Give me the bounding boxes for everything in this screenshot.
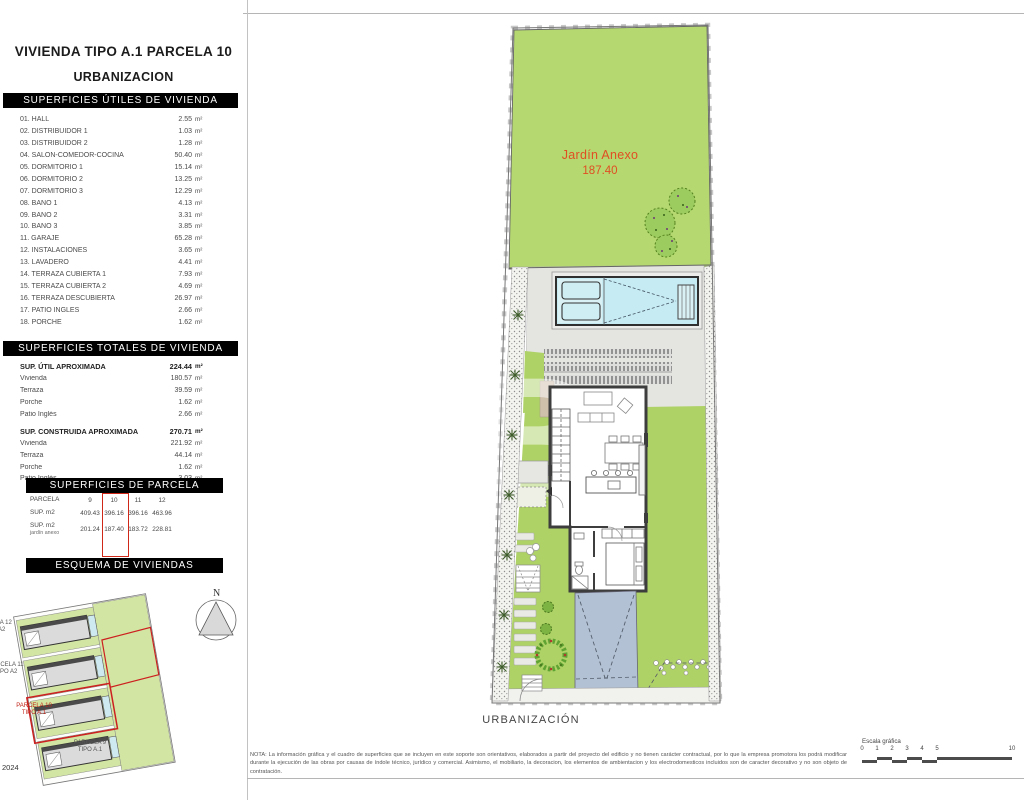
bedroom-furniture [602,529,644,585]
north-arrow-icon: N [196,588,236,640]
table-row: Terraza 44.14 m² [20,449,212,461]
total-group-rows: Vivienda 180.57 m² Terraza 39.59 m² Porc… [20,373,212,421]
row-label: 03. DISTRIBUIDOR 2 [20,140,148,147]
superficies-totales-table: SUP. ÚTIL APROXIMADA 224.44 m² Vivienda … [20,361,212,485]
table-row: 05. DORMITORIO 1 15.14 m² [20,162,212,174]
table-row: 13. LAVADERO 4.41 m² [20,257,212,269]
row-unit: m² [192,212,212,219]
row-label: 12. INSTALACIONES [20,247,148,254]
row-unit: m² [192,223,212,230]
row-unit: m² [192,164,212,171]
row-unit: m² [192,152,212,159]
esquema-svg: N [0,578,247,796]
legal-note: NOTA: La información gráfica y el cuadro… [250,751,847,776]
sheet-subtitle: URBANIZACION [0,70,247,84]
row-unit: m² [192,464,212,471]
parcela-sup-row: SUP. m2 409.43 396.16 396.16 463.96 [30,510,230,517]
table-row: Terraza 39.59 m² [20,385,212,397]
row-value: 65.28 [148,235,192,242]
row-label: 11. GARAJE [20,235,148,242]
row-label: 09. BAÑO 2 [20,212,148,219]
section-header-totales: SUPERFICIES TOTALES DE VIVIENDA [3,341,238,356]
row-value: 221.92 [148,440,192,447]
parcela-jardin-row: SUP. m2 jardín anexo 201.24 187.40 183.7… [30,523,230,536]
table-row: Vivienda 180.57 m² [20,373,212,385]
row-value: 44.14 [148,452,192,459]
row-value: 1.62 [148,399,192,406]
row-unit: m² [192,116,212,123]
dining-set [605,436,643,470]
table-row: 04. SALÓN-COMEDOR-COCINA 50.40 m² [20,150,212,162]
table-row: Patio Inglés 2.66 m² [20,409,212,421]
parcela-header-row: PARCELA 9 10 11 12 [30,497,230,504]
row-value: 180.57 [148,375,192,382]
row-value: 3.31 [148,212,192,219]
table-row: 15. TERRAZA CUBIERTA 2 4.69 m² [20,280,212,292]
sunbed [562,303,600,320]
row-label: 04. SALÓN-COMEDOR-COCINA [20,152,148,159]
table-row: 06. DORMITORIO 2 13.25 m² [20,173,212,185]
exterior-stair [516,565,540,592]
year-label: 2024 [2,763,19,772]
row-label: 02. DISTRIBUIDOR 1 [20,128,148,135]
section-header-parcela: SUPERFICIES DE PARCELA [26,478,223,493]
plan-caption: URBANIZACIÓN [456,714,606,726]
table-row: 17. PATIO INGLES 2.66 m² [20,304,212,316]
table-row: 08. BAÑO 1 4.13 m² [20,197,212,209]
row-label: 14. TERRAZA CUBIERTA 1 [20,271,148,278]
row-value: 1.03 [148,128,192,135]
scale-tick: 2 [890,746,893,752]
table-row: 03. DISTRIBUIDOR 2 1.28 m² [20,138,212,150]
row-label: Vivienda [20,440,148,447]
row-unit: m² [192,399,212,406]
row-label: Patio Inglés [20,411,148,418]
table-row: 10. BAÑO 3 3.85 m² [20,221,212,233]
row-label: 01. HALL [20,116,148,123]
scale-label: Escala gráfica [862,738,901,745]
row-value: 1.62 [148,319,192,326]
row-label: 08. BAÑO 1 [20,200,148,207]
row-label: Terraza [20,452,148,459]
esquema-drawing: N [0,578,247,796]
sheet-title: VIVIENDA TIPO A.1 PARCELA 10 [0,44,247,59]
section-header-utiles: SUPERFICIES ÚTILES DE VIVIENDA [3,93,238,108]
bottom-rule [247,778,1024,779]
row-value: 1.28 [148,140,192,147]
table-row: 14. TERRAZA CUBIERTA 1 7.93 m² [20,269,212,281]
row-label: 10. BAÑO 3 [20,223,148,230]
row-label: Porche [20,464,148,471]
plan-sheet: VIVIENDA TIPO A.1 PARCELA 10 URBANIZACIO… [0,0,1024,800]
row-unit: m² [192,387,212,394]
row-label: 06. DORMITORIO 2 [20,176,148,183]
row-value: 1.62 [148,464,192,471]
table-row: Vivienda 221.92 m² [20,437,212,449]
total-group-title: SUP. ÚTIL APROXIMADA 224.44 m² [20,361,212,373]
row-value: 13.25 [148,176,192,183]
esquema-label-parcela9: PARCELA 9TIPO A.1 [60,740,120,754]
scale-bar [862,757,1012,763]
driveway-ramp [575,591,638,695]
row-label: 07. DORMITORIO 3 [20,188,148,195]
row-unit: m² [192,188,212,195]
row-label: 16. TERRAZA DESCUBIERTA [20,295,148,302]
esquema-label-parcela11: PARCELA 11TIPO A2 [0,662,36,676]
row-value: 15.14 [148,164,192,171]
row-value: 7.93 [148,271,192,278]
panel-divider [247,0,248,800]
row-unit: m² [192,200,212,207]
row-unit: m² [192,128,212,135]
row-value: 4.13 [148,200,192,207]
table-row: 09. BAÑO 2 3.31 m² [20,209,212,221]
esquema-label-parcela12: PARCELA 12TIPO A2 [0,620,24,634]
row-unit: m² [192,440,212,447]
row-unit: m² [192,140,212,147]
table-row: Porche 1.62 m² [20,397,212,409]
row-unit: m² [192,319,212,326]
row-unit: m² [192,452,212,459]
table-row: 11. GARAJE 65.28 m² [20,233,212,245]
table-row: Porche 1.62 m² [20,461,212,473]
table-row: 16. TERRAZA DESCUBIERTA 26.97 m² [20,292,212,304]
row-label: 15. TERRAZA CUBIERTA 2 [20,283,148,290]
row-label: 18. PORCHE [20,319,148,326]
table-row: 18. PORCHE 1.62 m² [20,316,212,328]
site-plan: B [478,15,728,715]
svg-text:N: N [213,588,220,599]
row-label: 13. LAVADERO [20,259,148,266]
row-unit: m² [192,283,212,290]
table-row: 02. DISTRIBUIDOR 1 1.03 m² [20,126,212,138]
row-value: 2.66 [148,307,192,314]
row-label: Porche [20,399,148,406]
highlighted-parcel-column [102,493,129,557]
row-unit: m² [192,375,212,382]
row-value: 4.41 [148,259,192,266]
esquema-label-parcela10: PARCELA 10TIPO A.1 [4,703,64,717]
top-rule [243,13,1024,14]
row-label: 17. PATIO INGLES [20,307,148,314]
scale-tick: 10 [1009,746,1016,752]
table-row: 01. HALL 2.55 m² [20,114,212,126]
row-label: Terraza [20,387,148,394]
table-row: 07. DORMITORIO 3 12.29 m² [20,185,212,197]
scale-ticks: 01234510 [860,746,1016,754]
row-unit: m² [192,307,212,314]
row-unit: m² [192,247,212,254]
row-value: 3.65 [148,247,192,254]
sunbed [562,282,600,299]
row-value: 39.59 [148,387,192,394]
row-unit: m² [192,259,212,266]
jardin-anexo-label: Jardín Anexo 187.40 [540,148,660,177]
superficies-utiles-table: 01. HALL 2.55 m² 02. DISTRIBUIDOR 1 1.03… [20,114,212,328]
row-value: 50.40 [148,152,192,159]
row-value: 12.29 [148,188,192,195]
row-unit: m² [192,295,212,302]
site-blocks [13,594,176,786]
row-value: 4.69 [148,283,192,290]
parcela-table: PARCELA 9 10 11 12 SUP. m2 409.43 396.16… [30,497,230,542]
scale-tick: 0 [860,746,863,752]
scale-tick: 4 [920,746,923,752]
row-unit: m² [192,411,212,418]
row-value: 26.97 [148,295,192,302]
row-unit: m² [192,176,212,183]
row-value: 2.55 [148,116,192,123]
row-label: 05. DORMITORIO 1 [20,164,148,171]
scale-tick: 1 [875,746,878,752]
info-panel: VIVIENDA TIPO A.1 PARCELA 10 URBANIZACIO… [0,0,247,800]
scale-tick: 5 [935,746,938,752]
scale-tick: 3 [905,746,908,752]
row-value: 3.85 [148,223,192,230]
table-row: 12. INSTALACIONES 3.65 m² [20,245,212,257]
total-group-title: SUP. CONSTRUIDA APROXIMADA 270.71 m² [20,425,212,437]
section-header-esquema: ESQUEMA DE VIVIENDAS [26,558,223,573]
row-unit: m² [192,235,212,242]
row-label: Vivienda [20,375,148,382]
row-unit: m² [192,271,212,278]
row-value: 2.66 [148,411,192,418]
pool [552,272,702,329]
